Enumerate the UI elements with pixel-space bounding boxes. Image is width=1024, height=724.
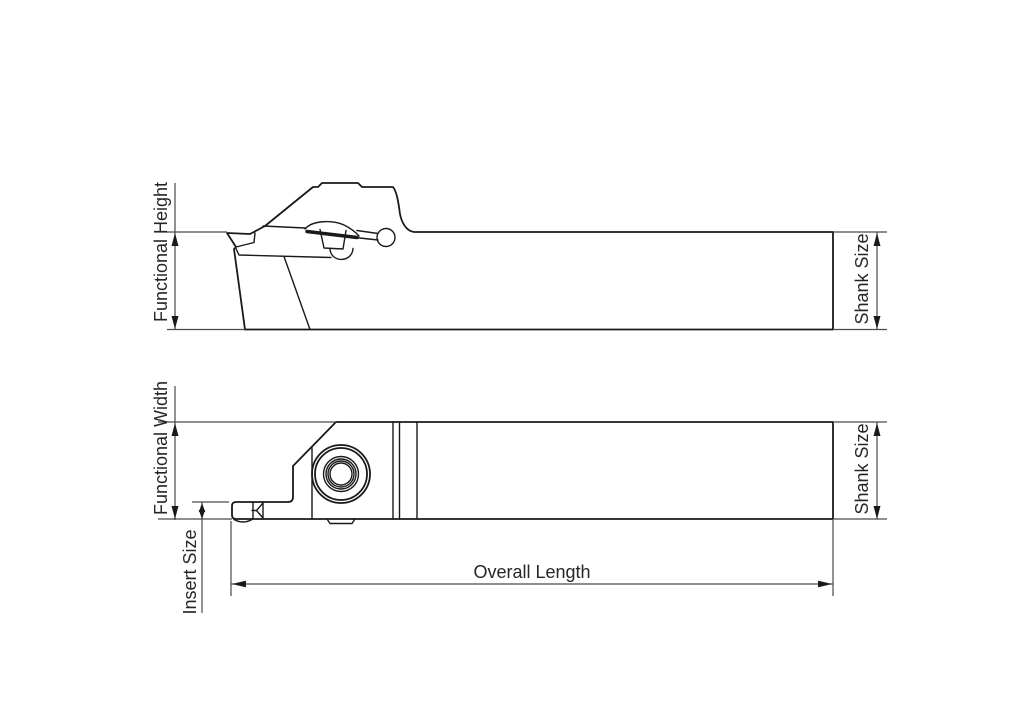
side-view-clamp-press-line [307, 232, 357, 238]
drawing-canvas: Functional Height Shank Size [0, 0, 1024, 724]
shank-size-side-arrow-down [874, 316, 881, 329]
plan-view-joint-lines [393, 422, 417, 519]
side-view-blade-front-edge [284, 257, 310, 330]
insert-size-arrow-down [199, 510, 205, 519]
dim-overall-length: Overall Length [231, 520, 833, 596]
side-view-seat-line [263, 226, 305, 228]
side-view [227, 183, 833, 330]
side-view-clamp-spring-loop [330, 249, 353, 260]
side-view-insert-edge [236, 233, 255, 247]
functional-width-arrow-down [172, 506, 179, 519]
plan-view-body-outline [232, 422, 833, 519]
screw-outer-ring [312, 445, 370, 503]
side-view-lever-ball [377, 229, 395, 247]
functional-width-extension-line [158, 422, 336, 519]
overall-length-arrow-left [232, 581, 246, 588]
functional-height-arrow-up [172, 233, 179, 246]
screw-outer-ring-inner [315, 448, 367, 500]
insert-size-label: Insert Size [180, 529, 200, 614]
functional-height-arrow-down [172, 316, 179, 329]
screw-socket [330, 463, 352, 485]
plan-view [232, 422, 833, 524]
functional-width-arrow-up [172, 423, 179, 436]
shank-size-side-label: Shank Size [852, 233, 872, 324]
overall-length-label: Overall Length [473, 562, 590, 582]
dim-functional-height: Functional Height [151, 182, 245, 330]
dim-shank-size-side: Shank Size [833, 232, 887, 330]
shank-size-plan-arrow-up [874, 423, 881, 436]
functional-width-label: Functional Width [151, 381, 171, 515]
overall-length-arrow-right [818, 581, 832, 588]
shank-size-side-arrow-up [874, 233, 881, 246]
screw-head-ring [324, 457, 359, 492]
dim-shank-size-plan: Shank Size [833, 422, 887, 519]
screw-socket-ring [328, 461, 354, 487]
plan-view-clamp-screw [312, 445, 370, 503]
functional-height-label: Functional Height [151, 182, 171, 322]
technical-drawing-svg: Functional Height Shank Size [0, 0, 1024, 724]
shank-size-plan-arrow-down [874, 506, 881, 519]
side-view-body-outline [227, 183, 833, 330]
shank-size-plan-label: Shank Size [852, 423, 872, 514]
